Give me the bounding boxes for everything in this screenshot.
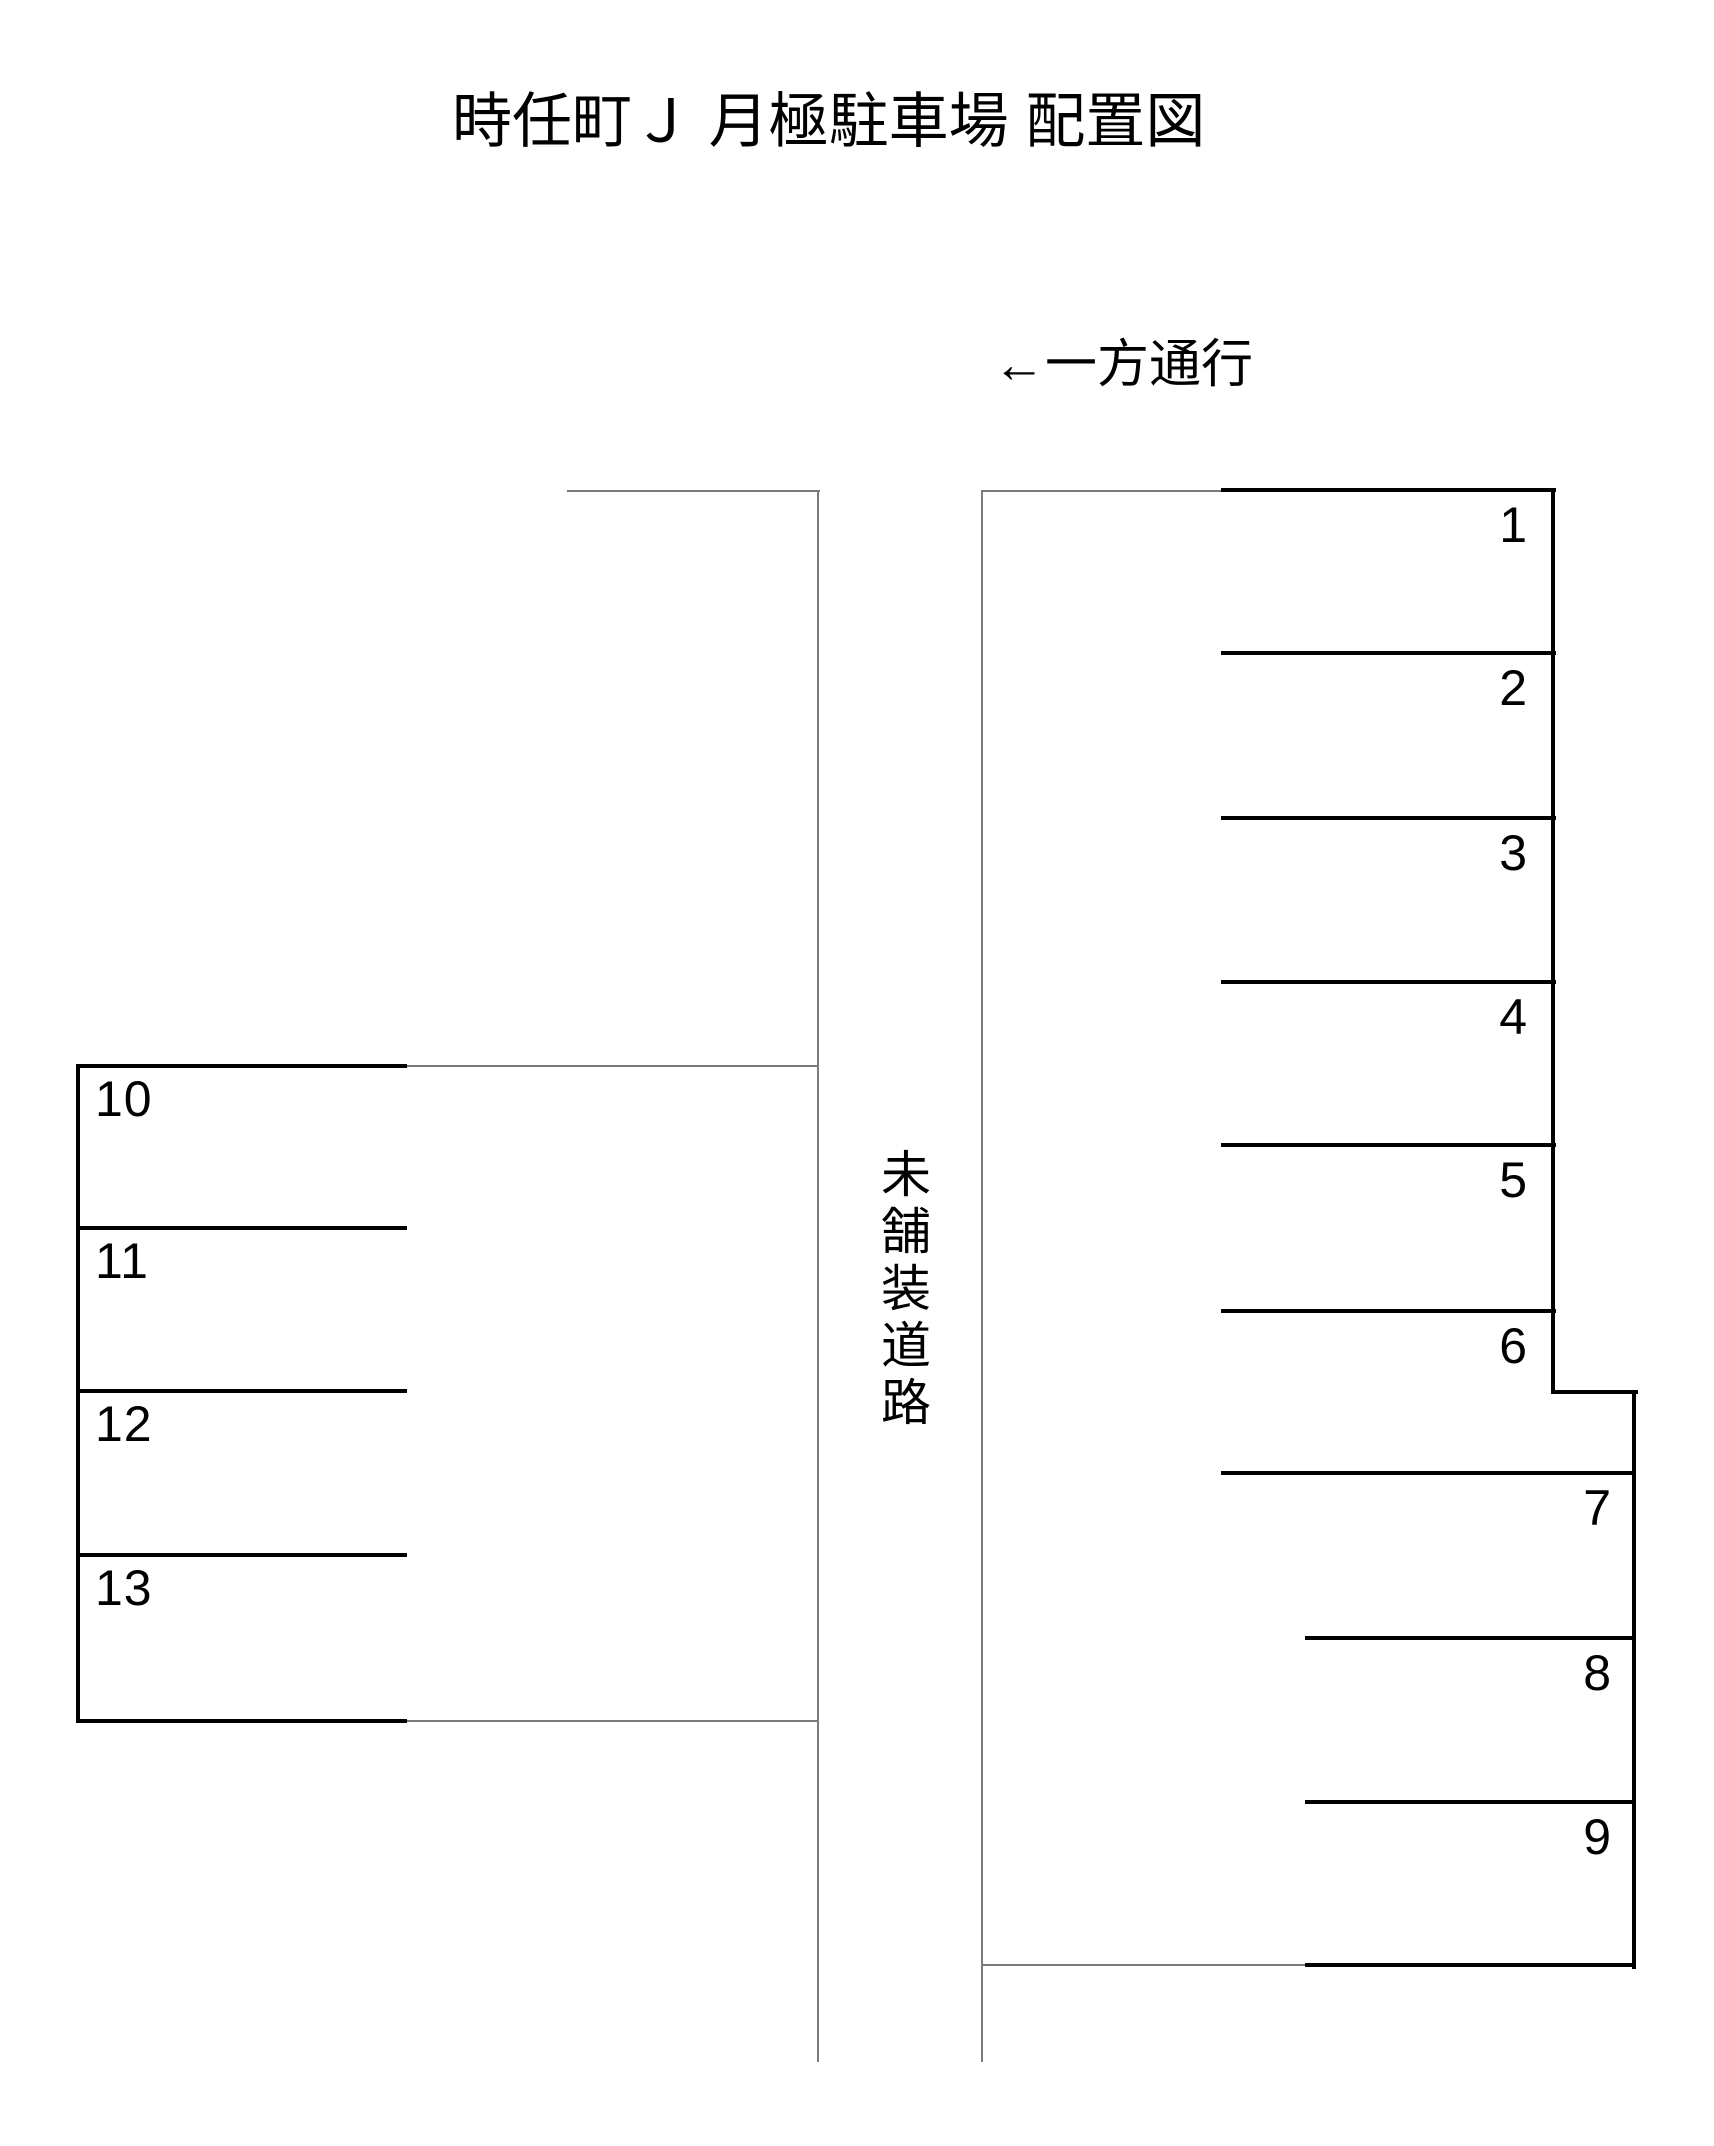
right-area-left-boundary [981,490,983,2062]
stall-12-label: 12 [95,1399,153,1449]
right-lot-divider-5-6 [1221,1309,1556,1313]
right-lot-divider-1-2 [1221,651,1556,655]
parking-layout-diagram: 時任町Ｊ 月極駐車場 配置図 ←一方通行 未舗装道路 1 2 3 4 5 6 7… [0,0,1714,2146]
left-lot-bottom-line [76,1719,407,1723]
right-lot-divider-3-4 [1221,980,1556,984]
stall-10-label: 10 [95,1074,153,1124]
stall-13-label: 13 [95,1563,153,1613]
stall-5-label: 5 [1368,1155,1528,1205]
left-area-top-boundary [567,490,820,492]
left-lot-divider-12-13 [76,1553,407,1557]
stall-3-label: 3 [1368,828,1528,878]
stall-4-label: 4 [1368,992,1528,1042]
stall-2-label: 2 [1368,663,1528,713]
stall-7-label: 7 [1452,1483,1612,1533]
one-way-label: 一方通行 [1045,336,1253,394]
unpaved-road-label: 未舗装道路 [877,1148,927,1433]
left-lot-divider-10-11 [76,1226,407,1230]
right-lot-right-border-lower [1632,1390,1636,1969]
right-lot-bottom-line [1305,1963,1636,1967]
stall-1-label: 1 [1368,500,1528,550]
stall-8-label: 8 [1452,1648,1612,1698]
right-area-top-boundary [981,490,1223,492]
right-lot-right-border-upper [1551,488,1555,1394]
right-lot-divider-6-7 [1221,1471,1636,1475]
left-arrow-icon: ← [993,336,1045,394]
left-lot-left-border [76,1064,80,1723]
right-lot-divider-8-9 [1305,1800,1636,1804]
right-lot-step-line [1551,1390,1638,1394]
stall-6-label: 6 [1368,1321,1528,1371]
right-area-bottom-boundary [981,1964,1307,1966]
left-lot-bottom-extension [405,1720,818,1722]
right-lot-top-line [1221,488,1556,492]
one-way-annotation: ←一方通行 [993,336,1253,396]
stall-9-label: 9 [1452,1812,1612,1862]
left-lot-top-line [76,1064,407,1068]
right-lot-divider-4-5 [1221,1143,1556,1147]
stall-11-label: 11 [95,1236,149,1286]
left-lot-divider-11-12 [76,1389,407,1393]
right-lot-divider-7-8 [1305,1636,1636,1640]
page-title: 時任町Ｊ 月極駐車場 配置図 [452,92,1205,152]
right-lot-divider-2-3 [1221,816,1556,820]
left-lot-top-extension [405,1065,818,1067]
left-area-right-boundary [817,490,819,2062]
